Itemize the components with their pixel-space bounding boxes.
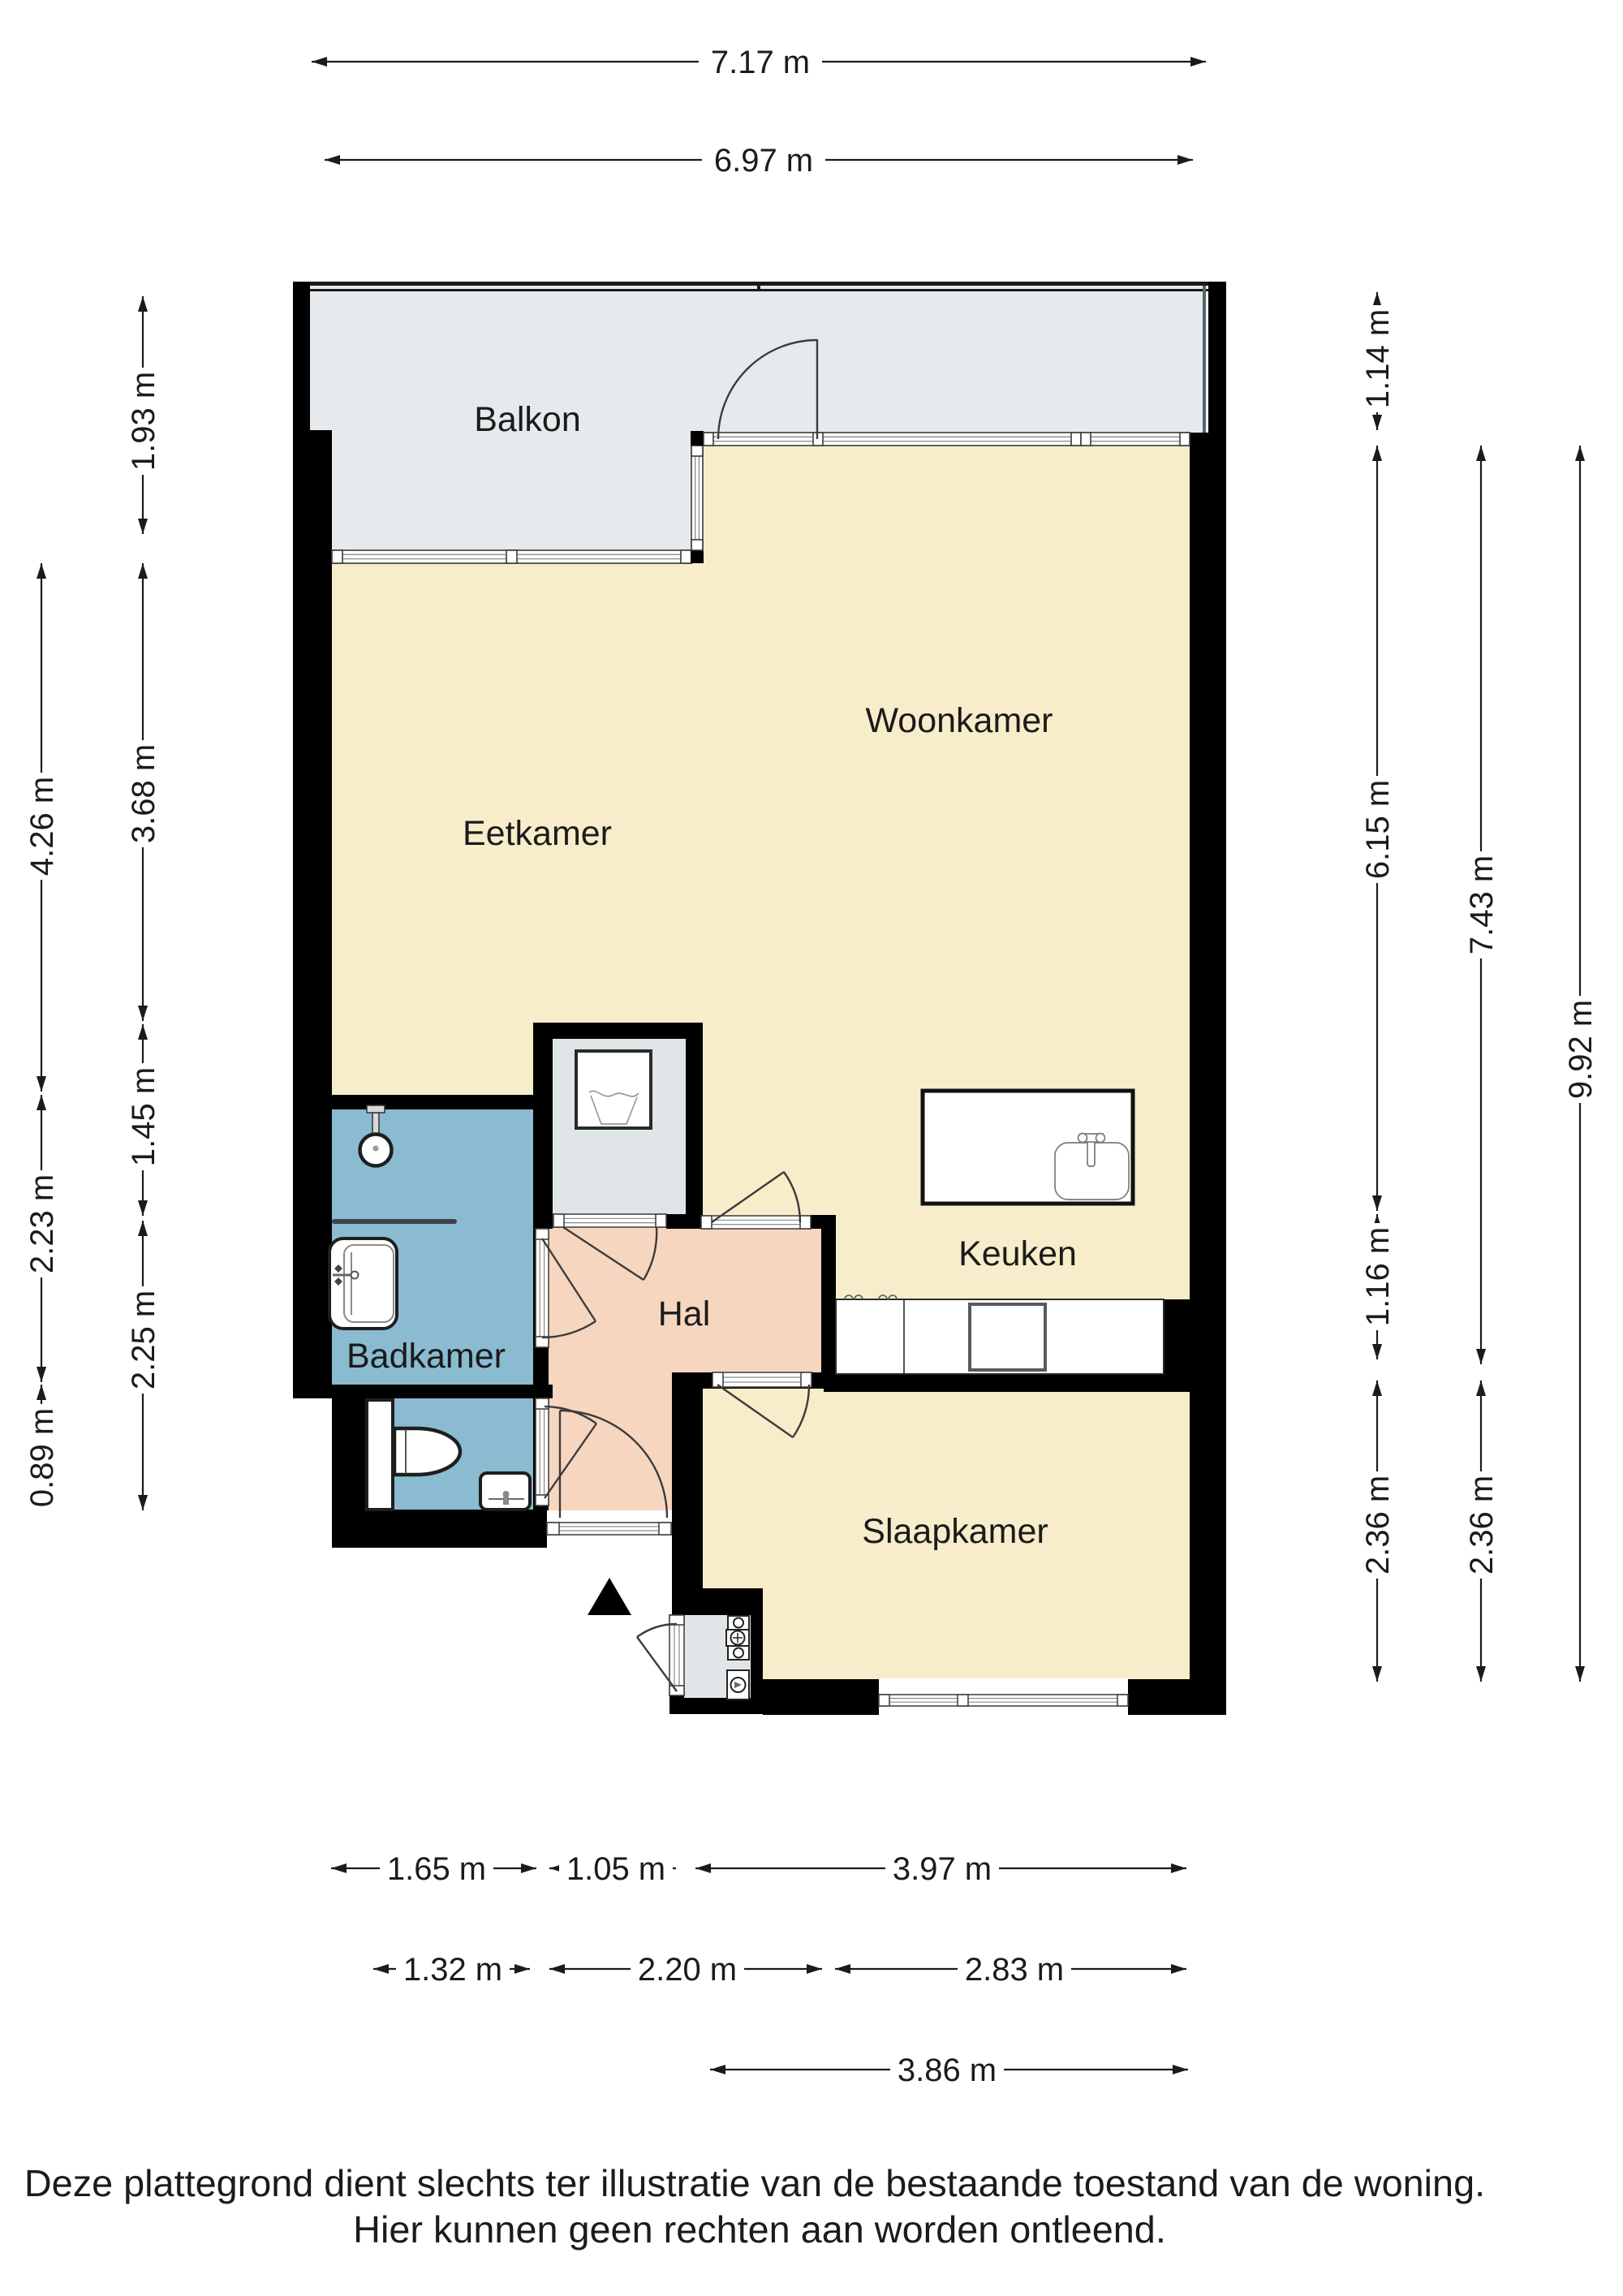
svg-text:Balkon: Balkon bbox=[474, 400, 580, 439]
svg-text:6.15 m: 6.15 m bbox=[1360, 780, 1396, 879]
svg-text:Hal: Hal bbox=[658, 1294, 711, 1333]
svg-text:2.23 m: 2.23 m bbox=[24, 1174, 60, 1273]
svg-text:7.43 m: 7.43 m bbox=[1464, 855, 1500, 954]
svg-text:Badkamer: Badkamer bbox=[347, 1337, 506, 1376]
svg-text:0.89 m: 0.89 m bbox=[24, 1408, 60, 1507]
svg-text:Woonkamer: Woonkamer bbox=[865, 701, 1053, 740]
svg-text:Slaapkamer: Slaapkamer bbox=[862, 1512, 1048, 1551]
svg-text:2.25 m: 2.25 m bbox=[126, 1290, 161, 1389]
svg-text:1.65 m: 1.65 m bbox=[387, 1851, 486, 1887]
svg-text:3.68 m: 3.68 m bbox=[126, 744, 161, 843]
svg-text:Keuken: Keuken bbox=[958, 1234, 1077, 1273]
svg-text:1.93 m: 1.93 m bbox=[126, 372, 161, 471]
svg-text:3.86 m: 3.86 m bbox=[898, 2053, 997, 2088]
svg-text:Eetkamer: Eetkamer bbox=[463, 814, 612, 853]
svg-text:7.17 m: 7.17 m bbox=[711, 45, 810, 80]
svg-text:2.36 m: 2.36 m bbox=[1464, 1475, 1500, 1574]
svg-text:1.05 m: 1.05 m bbox=[566, 1851, 665, 1887]
svg-text:1.16 m: 1.16 m bbox=[1360, 1227, 1396, 1326]
svg-text:4.26 m: 4.26 m bbox=[24, 777, 60, 876]
svg-text:2.20 m: 2.20 m bbox=[638, 1952, 737, 1988]
svg-text:1.45 m: 1.45 m bbox=[126, 1067, 161, 1166]
svg-text:9.92 m: 9.92 m bbox=[1563, 1000, 1599, 1099]
svg-text:Hier kunnen geen rechten aan w: Hier kunnen geen rechten aan worden ontl… bbox=[353, 2208, 1166, 2251]
svg-text:Deze plattegrond dient slechts: Deze plattegrond dient slechts ter illus… bbox=[24, 2162, 1485, 2204]
svg-text:6.97 m: 6.97 m bbox=[714, 143, 813, 179]
svg-text:1.14 m: 1.14 m bbox=[1360, 309, 1396, 408]
svg-text:3.97 m: 3.97 m bbox=[893, 1851, 992, 1887]
svg-text:2.83 m: 2.83 m bbox=[965, 1952, 1064, 1988]
svg-text:1.32 m: 1.32 m bbox=[403, 1952, 502, 1988]
svg-text:2.36 m: 2.36 m bbox=[1360, 1475, 1396, 1574]
